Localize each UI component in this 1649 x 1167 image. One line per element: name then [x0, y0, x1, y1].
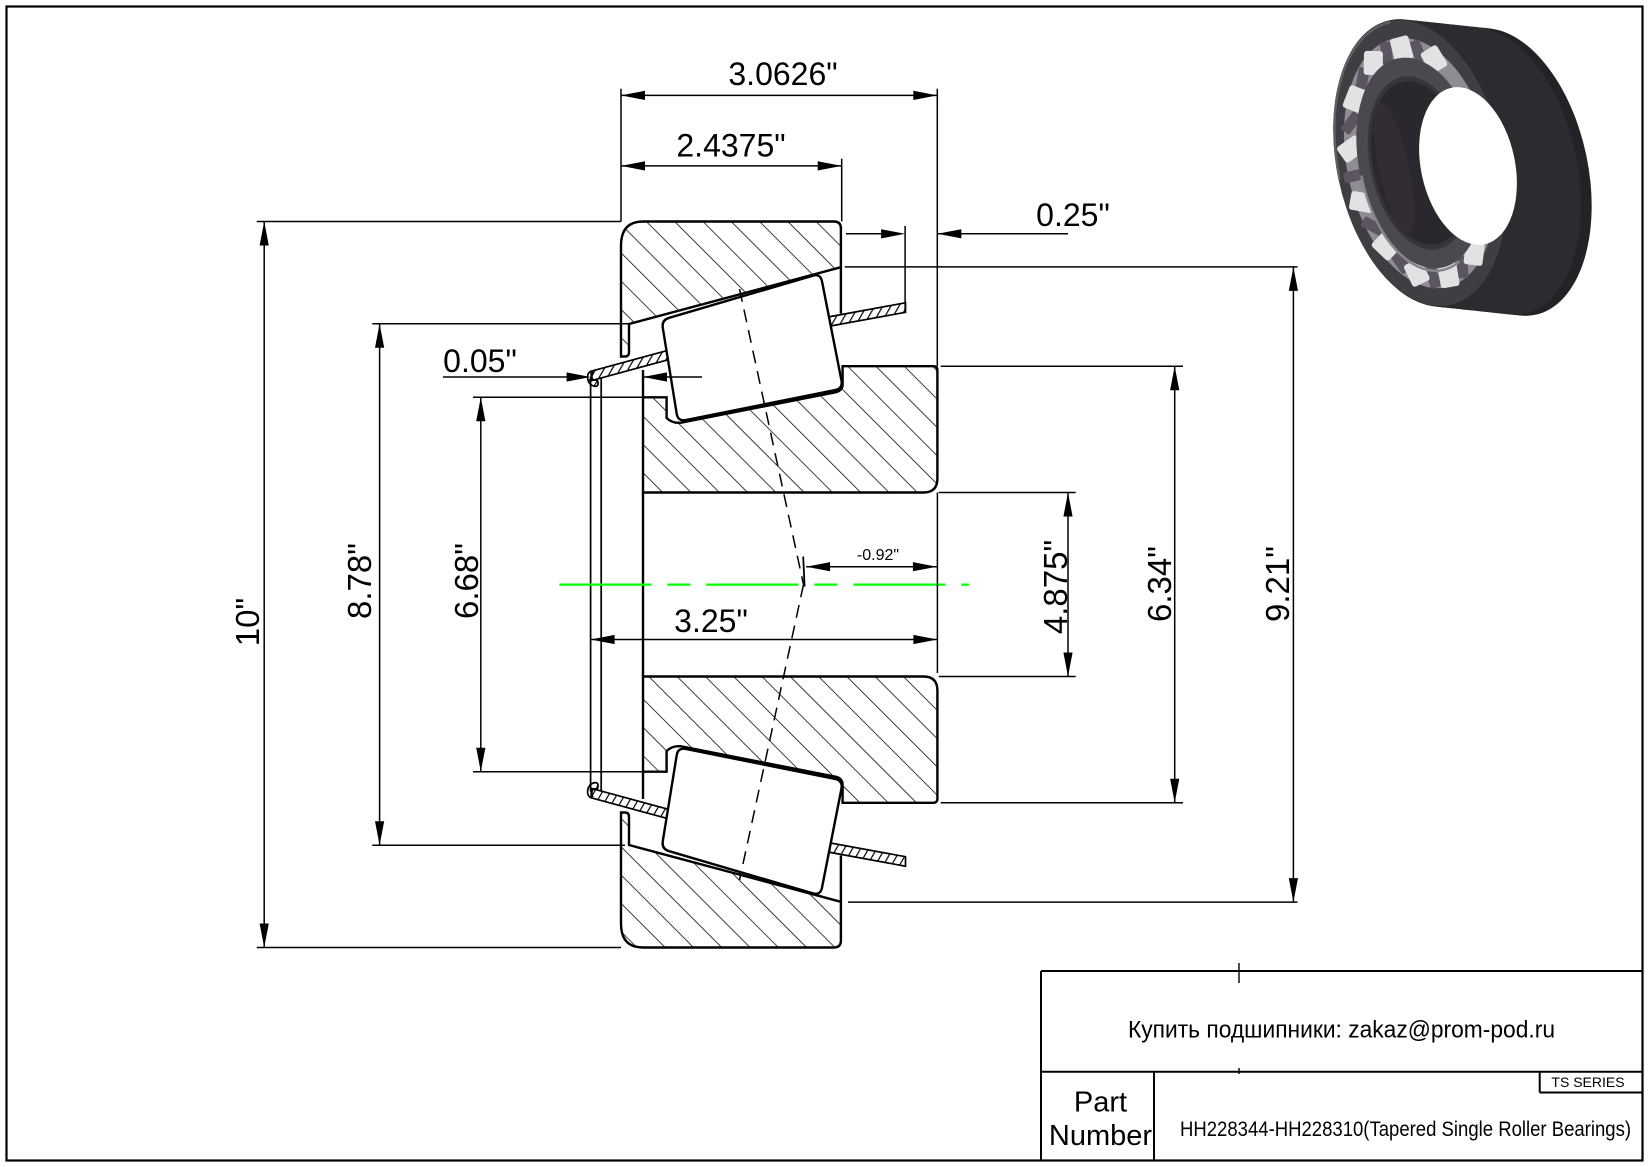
svg-text:9.21": 9.21" [1259, 546, 1296, 622]
svg-text:6.68": 6.68" [448, 543, 485, 619]
svg-text:Number: Number [1049, 1120, 1152, 1152]
svg-text:4.875": 4.875" [1037, 540, 1074, 634]
svg-text:HH228344-HH228310(Tapered Sing: HH228344-HH228310(Tapered Single Roller … [1180, 1118, 1631, 1141]
svg-text:0.05": 0.05" [443, 343, 517, 379]
svg-text:3.0626": 3.0626" [728, 56, 837, 92]
svg-text:3.25": 3.25" [674, 603, 748, 639]
svg-text:10": 10" [229, 598, 266, 646]
svg-text:Купить подшипники: zakaz@prom-: Купить подшипники: zakaz@prom-pod.ru [1128, 1016, 1555, 1043]
svg-text:0.25": 0.25" [1036, 197, 1110, 233]
svg-text:2.4375": 2.4375" [676, 128, 785, 164]
svg-text:-0.92": -0.92" [857, 547, 899, 564]
svg-text:8.78": 8.78" [341, 543, 378, 619]
svg-text:Part: Part [1074, 1086, 1127, 1118]
svg-text:6.34": 6.34" [1141, 546, 1178, 622]
svg-text:TS SERIES: TS SERIES [1551, 1074, 1624, 1090]
